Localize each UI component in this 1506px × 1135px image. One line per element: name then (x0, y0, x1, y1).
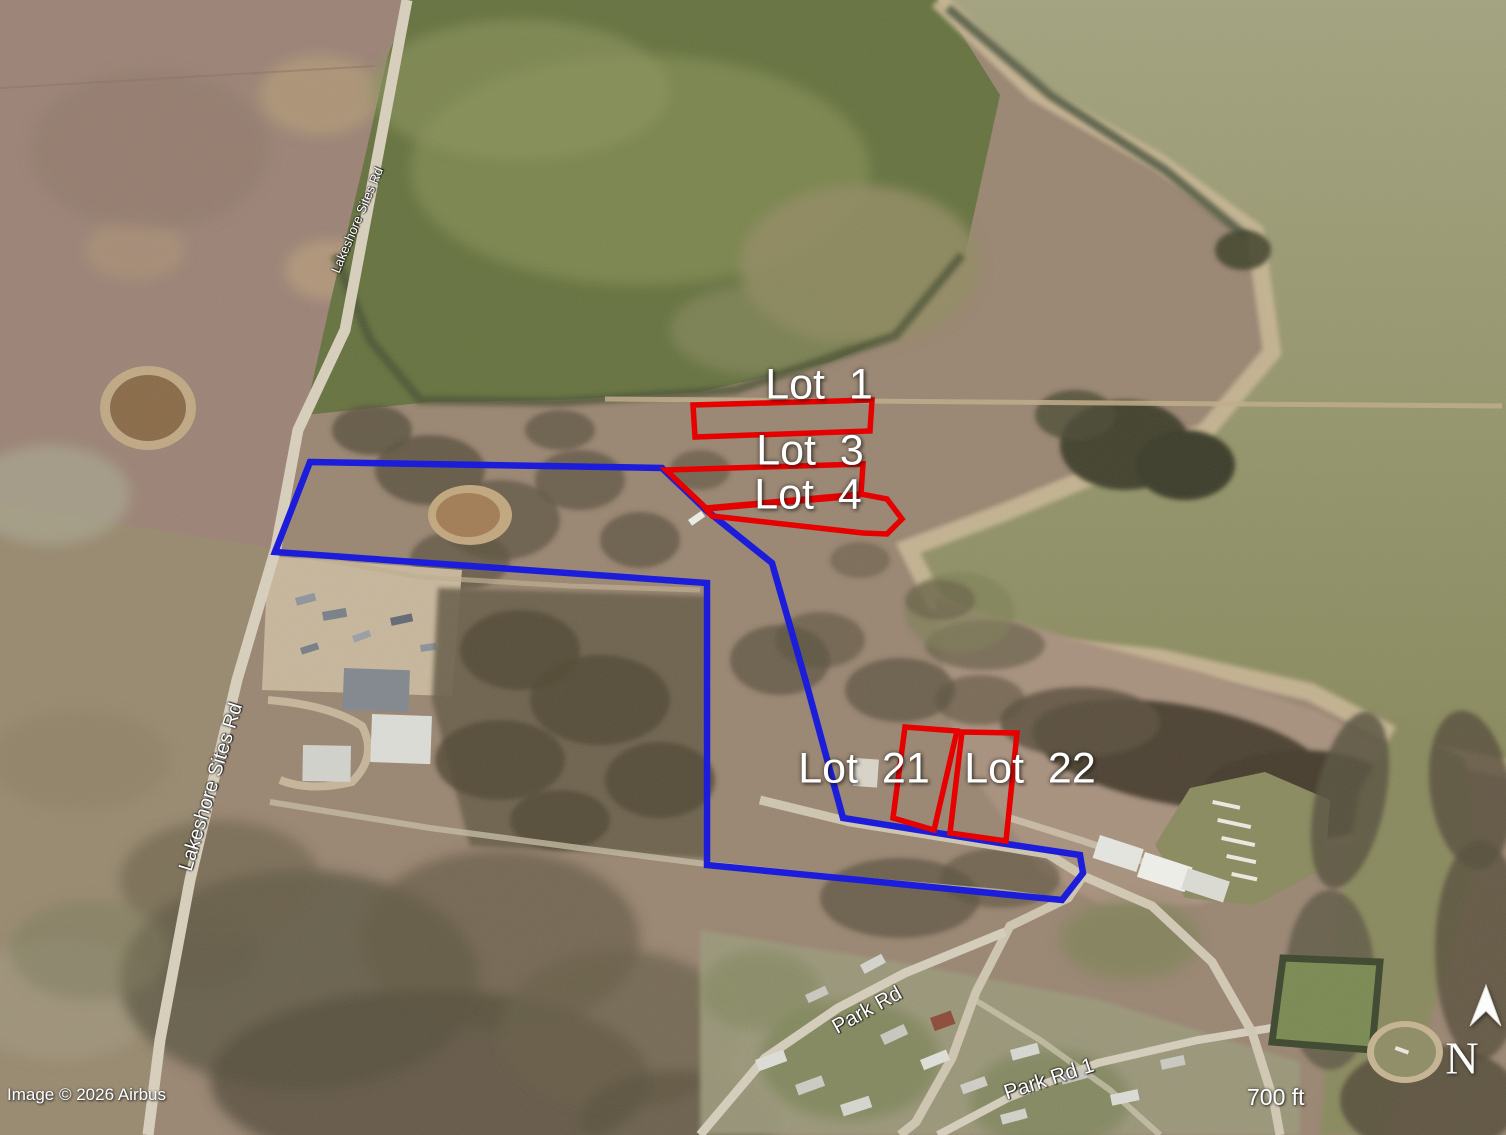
north-label: N (1445, 1032, 1478, 1085)
map-canvas[interactable]: Image © 2026 Airbus 700 ft N Lot 1Lot 3L… (0, 0, 1506, 1135)
imagery-attribution: Image © 2026 Airbus (7, 1085, 166, 1105)
scale-label: 700 ft (1247, 1084, 1305, 1111)
satellite-terrain (0, 0, 1506, 1135)
